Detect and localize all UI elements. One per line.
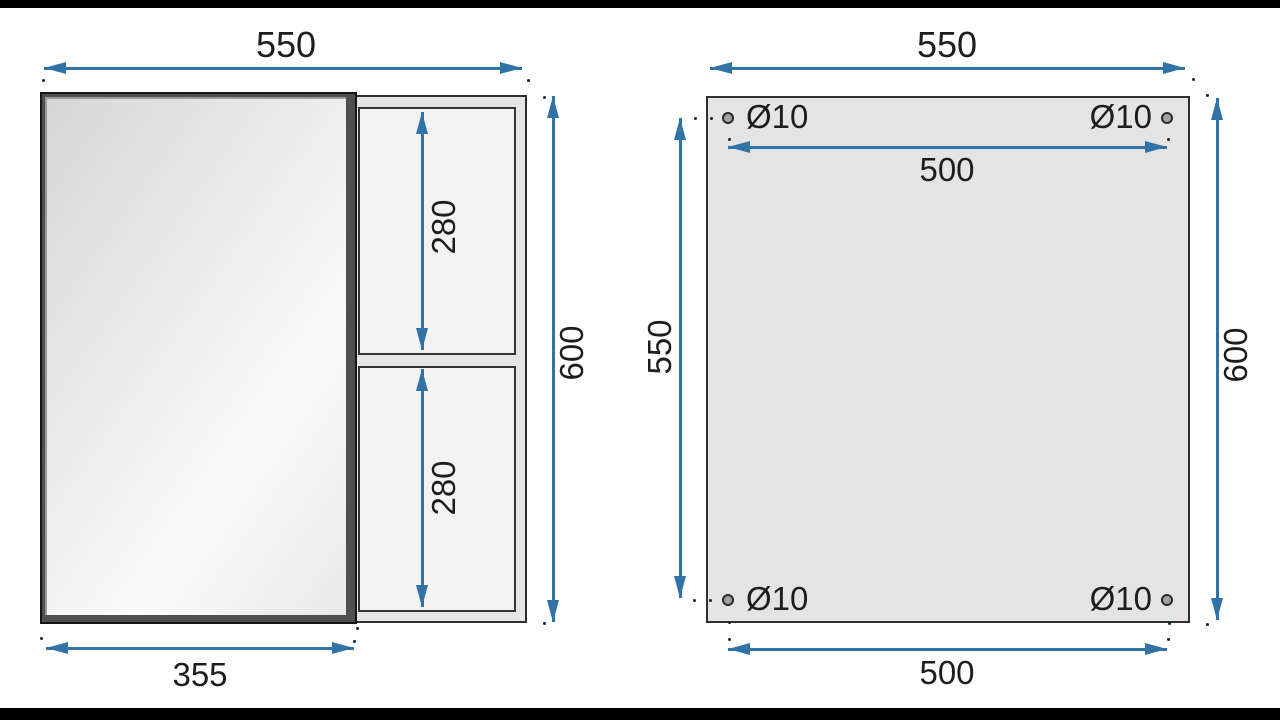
arrowhead-icon	[44, 62, 66, 74]
witness-dot	[710, 117, 713, 120]
technical-drawing-canvas: 550 600 280 280	[0, 0, 1280, 720]
arrowhead-icon	[674, 118, 686, 140]
arrowhead-icon	[1145, 141, 1167, 153]
arrowhead-icon	[1163, 62, 1185, 74]
mirror-door	[40, 92, 357, 624]
witness-dot	[728, 138, 731, 141]
witness-dot	[543, 622, 546, 625]
arrowhead-icon	[1145, 643, 1167, 655]
witness-dot	[728, 638, 731, 641]
witness-dot	[1167, 138, 1170, 141]
dim-back-height-label: 600	[1216, 295, 1256, 415]
witness-dot	[728, 621, 731, 624]
dim-door-width-line	[46, 647, 354, 650]
witness-dot	[42, 79, 45, 82]
arrowhead-icon	[1211, 98, 1223, 120]
mirror-glass	[45, 97, 346, 615]
witness-dot	[1167, 638, 1170, 641]
arrowhead-icon	[416, 328, 428, 350]
hole-label-bottom-right: Ø10	[1060, 581, 1152, 617]
arrowhead-icon	[728, 643, 750, 655]
dim-hole-span-bottom-line	[728, 648, 1167, 651]
dim-hole-span-top-line	[728, 146, 1167, 149]
witness-dot	[1192, 78, 1195, 81]
hole-label-top-left: Ø10	[746, 99, 808, 135]
dim-back-width-label: 550	[857, 27, 1037, 63]
hole-label-top-right: Ø10	[1060, 99, 1152, 135]
dim-front-width-line	[44, 67, 522, 70]
arrowhead-icon	[728, 141, 750, 153]
witness-dot	[693, 599, 696, 602]
dim-door-width-label: 355	[110, 658, 290, 692]
mounting-hole-bottom-right	[1161, 594, 1173, 606]
arrowhead-icon	[332, 642, 354, 654]
witness-dot	[694, 117, 697, 120]
witness-dot	[709, 599, 712, 602]
arrowhead-icon	[710, 62, 732, 74]
witness-dot	[1168, 622, 1171, 625]
mounting-hole-top-right	[1161, 112, 1173, 124]
dim-back-width-line	[710, 67, 1185, 70]
dim-hole-span-top-label: 500	[857, 153, 1037, 187]
letterbox-bottom	[0, 708, 1280, 720]
dim-front-height-label: 600	[552, 293, 592, 413]
letterbox-top	[0, 0, 1280, 8]
witness-dot	[40, 637, 43, 640]
witness-dot	[543, 96, 546, 99]
witness-dot	[1206, 94, 1209, 97]
arrowhead-icon	[416, 112, 428, 134]
hole-label-bottom-left: Ø10	[746, 581, 808, 617]
arrowhead-icon	[674, 576, 686, 598]
arrowhead-icon	[547, 600, 559, 622]
arrowhead-icon	[46, 642, 68, 654]
dim-shelf-bottom-label: 280	[424, 428, 464, 548]
mounting-hole-top-left	[722, 112, 734, 124]
dim-front-width-label: 550	[196, 27, 376, 63]
witness-dot	[527, 79, 530, 82]
arrowhead-icon	[416, 369, 428, 391]
dim-hole-span-vertical-label: 550	[640, 287, 680, 407]
arrowhead-icon	[500, 62, 522, 74]
arrowhead-icon	[1211, 598, 1223, 620]
arrowhead-icon	[547, 96, 559, 118]
dim-shelf-top-label: 280	[424, 167, 464, 287]
witness-dot	[1206, 623, 1209, 626]
arrowhead-icon	[416, 585, 428, 607]
witness-dot	[353, 640, 356, 643]
witness-dot	[356, 627, 359, 630]
dim-hole-span-bottom-label: 500	[857, 656, 1037, 690]
mounting-hole-bottom-left	[722, 594, 734, 606]
